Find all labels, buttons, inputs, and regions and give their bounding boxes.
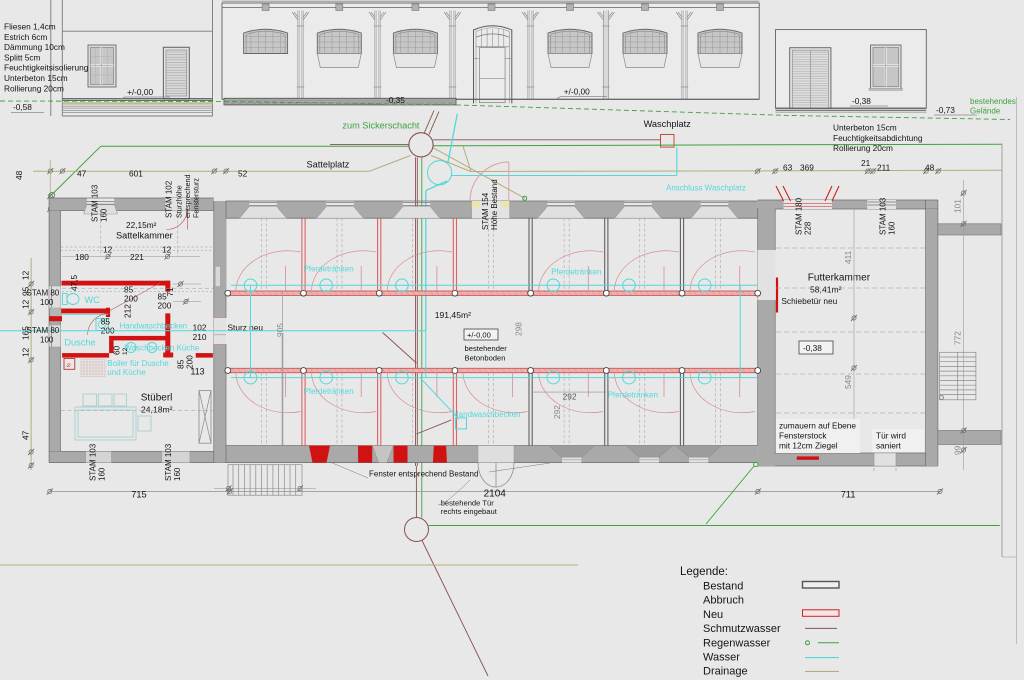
svg-text:Bestand: Bestand — [703, 581, 743, 593]
svg-text:200: 200 — [158, 301, 172, 311]
svg-text:+/-0,00: +/-0,00 — [564, 87, 590, 97]
svg-text:STAM 80: STAM 80 — [27, 289, 60, 298]
svg-text:Anschluss Waschplatz: Anschluss Waschplatz — [666, 184, 746, 193]
svg-text:715: 715 — [131, 490, 146, 500]
svg-text:Splitt 5cm: Splitt 5cm — [4, 52, 41, 62]
svg-text:Gelände: Gelände — [970, 107, 1001, 116]
svg-text:601: 601 — [129, 169, 143, 179]
svg-text:⌀: ⌀ — [67, 362, 71, 369]
svg-text:Fensterstock: Fensterstock — [779, 431, 827, 441]
svg-text:58,41m²: 58,41m² — [810, 285, 842, 295]
svg-text:12: 12 — [21, 347, 31, 357]
svg-text:Handwaschbecken: Handwaschbecken — [453, 410, 521, 419]
svg-text:21: 21 — [861, 158, 871, 168]
svg-text:100: 100 — [40, 336, 54, 345]
svg-text:Stüberl: Stüberl — [141, 393, 173, 404]
svg-text:228: 228 — [804, 221, 813, 235]
svg-text:160: 160 — [173, 467, 182, 481]
svg-text:bestehendes: bestehendes — [970, 97, 1016, 106]
svg-text:-0,38: -0,38 — [852, 96, 871, 106]
svg-text:Rollierung 20cm: Rollierung 20cm — [4, 83, 64, 93]
svg-text:Futterkammer: Futterkammer — [808, 273, 871, 284]
svg-text:772: 772 — [953, 331, 963, 345]
svg-text:Tür wird: Tür wird — [876, 431, 906, 441]
svg-text:Pferdetränken: Pferdetränken — [303, 265, 353, 274]
svg-text:STAM 103: STAM 103 — [91, 184, 100, 222]
svg-text:Dusche: Dusche — [64, 338, 95, 348]
svg-text:200: 200 — [124, 294, 138, 304]
svg-text:STAM 103: STAM 103 — [89, 443, 98, 481]
svg-text:rechts eingebaut: rechts eingebaut — [441, 507, 498, 516]
svg-text:180: 180 — [75, 252, 89, 262]
svg-text:Dämmung 10cm: Dämmung 10cm — [4, 42, 65, 52]
svg-text:Schiebetür neu: Schiebetür neu — [781, 296, 837, 306]
svg-text:Drainage: Drainage — [703, 666, 748, 678]
svg-text:292: 292 — [563, 392, 577, 402]
svg-text:Pferdetränken: Pferdetränken — [551, 268, 601, 277]
svg-text:+/-0,00: +/-0,00 — [127, 87, 153, 97]
svg-text:Unterbeton 15cm: Unterbeton 15cm — [4, 73, 68, 83]
svg-text:160: 160 — [888, 221, 897, 235]
svg-text:48: 48 — [14, 170, 24, 180]
svg-text:Feuchtigkeitsisolierung: Feuchtigkeitsisolierung — [4, 63, 89, 73]
svg-text:Fliesen 1,4cm: Fliesen 1,4cm — [4, 22, 56, 32]
svg-text:Waschbecken Küche: Waschbecken Küche — [124, 344, 199, 353]
svg-text:Estrich 6cm: Estrich 6cm — [4, 32, 47, 42]
svg-text:Legende:: Legende: — [680, 566, 728, 578]
svg-text:-0,58: -0,58 — [13, 102, 32, 112]
svg-text:48: 48 — [925, 163, 935, 173]
svg-text:221: 221 — [130, 252, 144, 262]
svg-text:saniert: saniert — [876, 441, 902, 451]
svg-text:47,5: 47,5 — [69, 274, 79, 291]
svg-text:47: 47 — [77, 169, 87, 179]
svg-text:Fenstersturz: Fenstersturz — [192, 178, 201, 218]
svg-text:52: 52 — [238, 169, 248, 179]
svg-text:292: 292 — [552, 405, 562, 419]
svg-text:63: 63 — [783, 163, 793, 173]
svg-text:STAM 102: STAM 102 — [165, 180, 174, 218]
svg-text:99: 99 — [953, 445, 963, 455]
svg-text:160: 160 — [100, 208, 109, 222]
svg-text:191,45m²: 191,45m² — [435, 310, 471, 320]
svg-text:Waschplatz: Waschplatz — [644, 119, 692, 129]
svg-text:Handwaschbecken: Handwaschbecken — [120, 322, 188, 331]
svg-text:160: 160 — [98, 467, 107, 481]
svg-text:Betonboden: Betonboden — [465, 354, 506, 363]
svg-text:STAM 154: STAM 154 — [481, 192, 490, 230]
svg-text:Pferdetränken: Pferdetränken — [608, 391, 658, 400]
svg-text:zumauern auf Ebene: zumauern auf Ebene — [779, 421, 856, 431]
svg-text:Boiler für Dusche: Boiler für Dusche — [107, 359, 169, 368]
svg-text:STAM 103: STAM 103 — [164, 443, 173, 481]
svg-text:und Küche: und Küche — [107, 368, 146, 377]
svg-text:-0,38: -0,38 — [803, 343, 822, 353]
svg-text:905: 905 — [275, 323, 285, 337]
svg-text:210: 210 — [193, 332, 207, 342]
svg-text:Abbruch: Abbruch — [703, 595, 744, 607]
svg-text:Regenwasser: Regenwasser — [703, 637, 771, 649]
svg-text:bestehender: bestehender — [465, 344, 508, 353]
svg-text:Schmutzwasser: Schmutzwasser — [703, 623, 781, 635]
svg-text:Fenster entsprechend Bestand: Fenster entsprechend Bestand — [369, 470, 478, 479]
svg-text:-0,73: -0,73 — [936, 105, 955, 115]
svg-text:298: 298 — [514, 322, 524, 336]
svg-text:22,15m²: 22,15m² — [126, 220, 157, 230]
svg-text:60: 60 — [112, 345, 122, 355]
svg-text:369: 369 — [800, 163, 814, 173]
svg-text:+/-0,00: +/-0,00 — [467, 331, 491, 340]
svg-text:Sattelkammer: Sattelkammer — [116, 231, 173, 241]
svg-text:Höhe Bestand: Höhe Bestand — [490, 179, 499, 230]
svg-text:24,18m²: 24,18m² — [141, 405, 173, 415]
svg-text:211: 211 — [877, 163, 891, 173]
svg-text:47: 47 — [21, 430, 31, 440]
svg-text:100: 100 — [40, 298, 54, 307]
svg-text:WC: WC — [85, 295, 101, 305]
svg-text:STAM 80: STAM 80 — [27, 326, 60, 335]
svg-text:STAM 180: STAM 180 — [795, 197, 804, 235]
svg-text:mit 12cm Ziegel: mit 12cm Ziegel — [779, 441, 838, 451]
svg-text:12: 12 — [103, 245, 113, 255]
svg-text:411: 411 — [843, 250, 853, 264]
svg-text:Sattelplatz: Sattelplatz — [307, 159, 350, 169]
svg-text:Neu: Neu — [703, 609, 723, 621]
svg-text:zum Sickerschacht: zum Sickerschacht — [342, 121, 420, 131]
svg-text:101: 101 — [953, 199, 963, 213]
svg-text:12: 12 — [21, 270, 31, 280]
svg-text:711: 711 — [841, 490, 856, 500]
svg-text:12: 12 — [21, 299, 31, 309]
svg-text:212: 212 — [123, 304, 133, 318]
svg-text:12: 12 — [162, 245, 172, 255]
svg-text:Pferdetränken: Pferdetränken — [303, 387, 353, 396]
svg-text:Wasser: Wasser — [703, 652, 740, 664]
svg-text:113: 113 — [191, 367, 205, 377]
svg-text:STAM 103: STAM 103 — [879, 197, 888, 235]
svg-text:Unterbeton 15cm: Unterbeton 15cm — [833, 123, 897, 133]
svg-text:549: 549 — [843, 375, 853, 389]
svg-text:12: 12 — [122, 347, 129, 355]
svg-text:Feuchtigkeitsabdichtung: Feuchtigkeitsabdichtung — [833, 133, 923, 143]
